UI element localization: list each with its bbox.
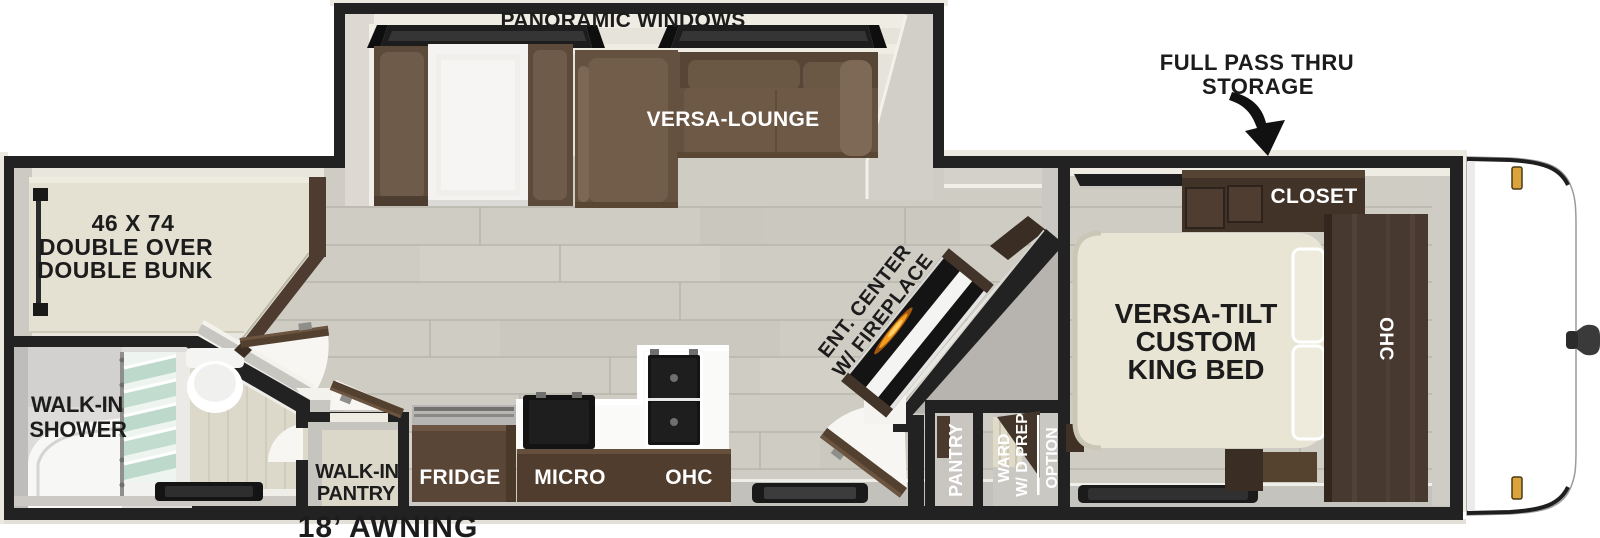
svg-text:OHC: OHC <box>665 466 713 489</box>
svg-text:WARD: WARD <box>996 434 1013 483</box>
svg-text:FULL PASS THRU: FULL PASS THRU <box>1160 50 1354 75</box>
svg-text:OHC: OHC <box>1375 317 1396 361</box>
svg-text:VERSA-LOUNGE: VERSA-LOUNGE <box>647 108 820 131</box>
svg-text:W/ D PREP: W/ D PREP <box>1014 413 1031 497</box>
svg-text:CLOSET: CLOSET <box>1271 185 1358 208</box>
svg-text:PANTRY: PANTRY <box>317 483 396 505</box>
svg-text:WALK-IN: WALK-IN <box>315 461 398 483</box>
svg-text:DOUBLE BUNK: DOUBLE BUNK <box>37 257 212 283</box>
svg-text:FRIDGE: FRIDGE <box>419 466 500 489</box>
svg-text:VERSA-TILT: VERSA-TILT <box>1115 298 1278 329</box>
svg-text:CUSTOM: CUSTOM <box>1136 326 1257 357</box>
svg-text:WALK-IN: WALK-IN <box>31 392 123 417</box>
svg-text:OPTION: OPTION <box>1044 427 1061 488</box>
svg-text:PANTRY: PANTRY <box>946 423 966 497</box>
svg-text:KING BED: KING BED <box>1128 354 1265 385</box>
svg-text:18’ AWNING: 18’ AWNING <box>298 511 479 538</box>
svg-text:MICRO: MICRO <box>534 466 606 489</box>
svg-text:PANORAMIC WINDOWS: PANORAMIC WINDOWS <box>500 9 745 32</box>
svg-text:46 X 74: 46 X 74 <box>92 210 175 236</box>
svg-text:STORAGE: STORAGE <box>1202 74 1314 99</box>
svg-text:SHOWER: SHOWER <box>29 417 127 442</box>
